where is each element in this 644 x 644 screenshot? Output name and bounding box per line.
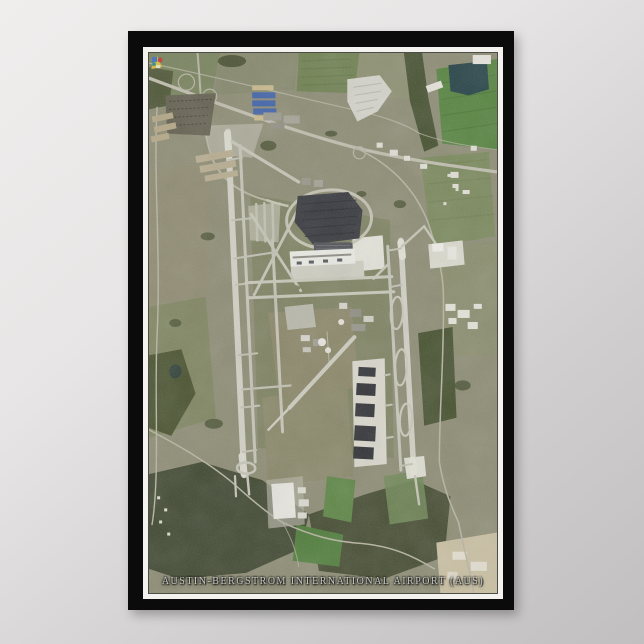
poster-frame: AUSTIN-BERGSTROM INTERNATIONAL AIRPORT (… bbox=[128, 31, 514, 610]
frame-mat: AUSTIN-BERGSTROM INTERNATIONAL AIRPORT (… bbox=[143, 47, 503, 599]
airport-satellite-photo: AUSTIN-BERGSTROM INTERNATIONAL AIRPORT (… bbox=[149, 53, 497, 593]
wall-background: AUSTIN-BERGSTROM INTERNATIONAL AIRPORT (… bbox=[0, 0, 644, 644]
photo-grain bbox=[149, 53, 497, 593]
satellite-map bbox=[149, 53, 497, 593]
poster-caption: AUSTIN-BERGSTROM INTERNATIONAL AIRPORT (… bbox=[149, 577, 497, 587]
